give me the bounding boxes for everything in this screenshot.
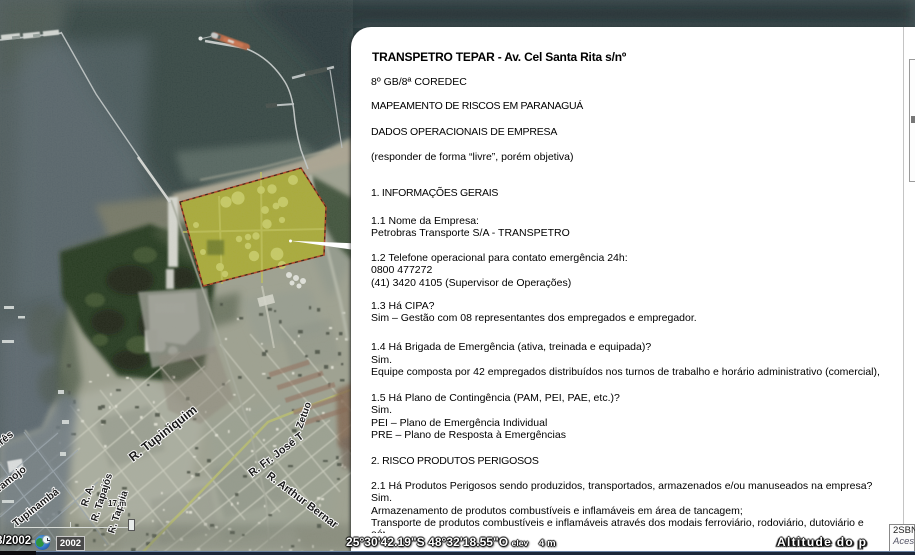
svg-text:17 m: 17 m xyxy=(108,499,126,508)
